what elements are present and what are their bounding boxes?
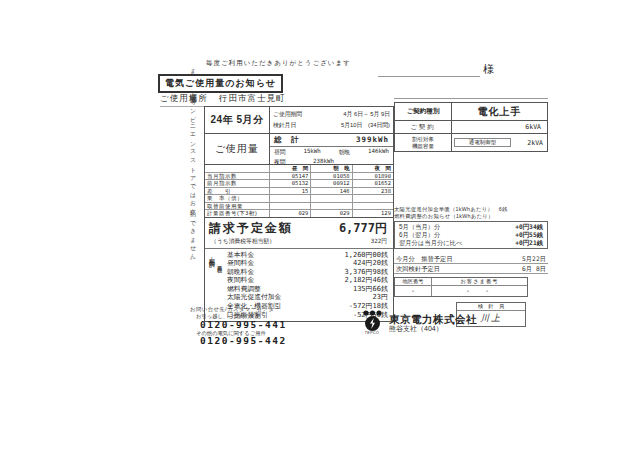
- usage-billing-table: 24年 5月分 ご使用期間 4月 6日～ 5月 9日 検針月日 5月10日 (3…: [204, 106, 394, 322]
- usage-period-line: ご使用期間 4月 6日～ 5月 9日: [273, 110, 390, 119]
- next-reading-value: 6月 8日: [522, 264, 546, 273]
- discount-device-label-line2: 機器容量: [412, 143, 434, 150]
- usage-place-label: ご使用場所: [160, 93, 208, 103]
- company-names: 東京電力株式会社 熊谷支社（404）: [389, 313, 477, 333]
- contact-title: お問い合せ先/カスタマーセンター: [190, 306, 348, 313]
- rate-notice-block: 太陽光促進付加金単価（1kWhあたり） 6銭 燃料費調整のお知らせ（1kWhあた…: [394, 206, 548, 249]
- contract-info-column: ご契約種別 電化上手 ご契約 6kVA 割引対象 機器容量 通電制御型 2kVA: [394, 98, 548, 327]
- charge-label: 朝晩料金: [227, 268, 254, 277]
- contract-type-value: 電化上手: [452, 105, 547, 119]
- tepco-logo-text: TEPCO: [365, 332, 380, 336]
- billed-amount-row: 請求予定金額 6,777円: [205, 217, 393, 237]
- meter-value: [269, 194, 310, 202]
- meter-row-label: 前月指示数: [205, 179, 269, 187]
- usage-morning-label: 朝晩: [339, 148, 351, 157]
- reading-date-line: 検針月日 5月10日 (34日間): [273, 121, 390, 130]
- charge-value: 3,376円98銭: [344, 268, 388, 277]
- meter-value: [352, 202, 393, 210]
- customer-number-header: 地区番号 お客さま番号: [395, 278, 527, 286]
- transfer-date-value: 5月22日: [522, 254, 546, 263]
- fuel-adjustment-line: 燃料費調整のお知らせ（1kWhあたり）: [394, 213, 548, 220]
- meter-value: [352, 194, 393, 202]
- customer-number-label: お客さま番号: [432, 278, 527, 285]
- contract-type-label: ご契約種別: [395, 103, 452, 120]
- contract-capacity-row: ご契約 6kVA: [395, 121, 547, 134]
- meter-row-label: 取替前使用量: [205, 202, 269, 210]
- charge-value: 23円: [373, 293, 388, 302]
- company-branch: 熊谷支社（404）: [389, 325, 477, 333]
- company-name: 東京電力株式会社: [389, 313, 477, 325]
- usage-label: ご使用量: [205, 134, 270, 164]
- meter-value: 029: [310, 209, 351, 217]
- usage-day-label: 昼間: [274, 148, 286, 157]
- usage-total-line: 総 計 399kWh: [270, 134, 393, 147]
- meter-value: [310, 202, 351, 210]
- usage-values: 総 計 399kWh 昼間 15kWh 朝晩 146kWh 夜間 238kWh: [270, 134, 393, 164]
- breakdown-inner-label: 電力量料金: [217, 261, 224, 264]
- fuel-row-current: 5月（当月）分 +0円34銭: [399, 223, 543, 231]
- usage-place-row: ご使用場所 行田市富士見町: [160, 93, 392, 107]
- reading-date-label: 検針月日: [273, 121, 296, 130]
- tepco-logo-icon: TEPCO: [360, 310, 384, 336]
- meter-row-label: 計量器番号(下3桁): [205, 209, 269, 217]
- usage-total-value: 399kWh: [356, 135, 389, 145]
- meter-value: 01652: [352, 179, 393, 187]
- contract-table: ご契約種別 電化上手 ご契約 6kVA 割引対象 機器容量 通電制御型 2kVA: [394, 102, 548, 152]
- meter-value: 05132: [269, 179, 310, 187]
- usage-place-value: 行田市富士見町: [219, 93, 286, 103]
- usage-total-label: 総 計: [274, 135, 300, 145]
- meter-value: 05147: [269, 172, 310, 180]
- contract-capacity-label: ご契約: [395, 121, 452, 133]
- area-number-label: 地区番号: [395, 278, 432, 285]
- charge-value: 1,260円00銭: [344, 251, 388, 260]
- billed-amount-value: 6,777円: [339, 220, 387, 237]
- customer-number-values: - - -: [395, 286, 527, 296]
- fuel-row-value: +0円21銭: [515, 239, 543, 247]
- fuel-row-value: +0円55銭: [515, 231, 543, 239]
- fuel-row-label: 6月（翌月）分: [399, 231, 440, 239]
- other-phone-number: 0120-995-442: [190, 336, 348, 346]
- billing-month: 24年 5月分: [205, 107, 270, 133]
- honorific-sama: 様: [483, 62, 494, 77]
- tax-value: 322円: [371, 237, 387, 246]
- divider-line: [394, 98, 548, 99]
- meter-value: 029: [269, 209, 310, 217]
- area-number-value: -: [395, 286, 432, 296]
- usage-period-value: 4月 6日～ 5月 9日: [343, 110, 390, 119]
- meter-value: 146: [310, 187, 351, 195]
- company-block: TEPCO 東京電力株式会社 熊谷支社（404）: [360, 310, 477, 336]
- transfer-date-label: 今月分 振替予定日: [396, 254, 453, 263]
- usage-morning-value: 146kWh: [368, 148, 389, 157]
- charge-label: 夜間料金: [227, 276, 254, 285]
- fuel-row-label: 翌月分は当月分に比べ: [399, 239, 462, 247]
- contract-capacity-value: 6kVA: [452, 123, 547, 131]
- footer-block: お問い合せ先/カスタマーセンター お引っ越し、ご契約の変更 0120-995-4…: [190, 306, 540, 346]
- meter-value: 01890: [352, 172, 393, 180]
- bill-title: 電気ご使用量のお知らせ: [158, 74, 283, 93]
- fuel-row-label: 5月（当月）分: [399, 223, 440, 231]
- meter-value: 00912: [310, 179, 351, 187]
- meter-reading-table: 昼 間 朝 晩 夜 間 当月指示数 05147 01058 01890 前月指示…: [205, 165, 393, 217]
- meter-value: 15: [269, 187, 310, 195]
- solar-surcharge-line: 太陽光促進付加金単価（1kWhあたり） 6銭: [394, 206, 548, 213]
- billed-amount-label: 請求予定金額: [209, 220, 293, 237]
- next-reading-row: 次回検針予定日 6月 8日: [394, 264, 548, 274]
- billing-month-row: 24年 5月分 ご使用期間 4月 6日～ 5月 9日 検針月日 5月10日 (3…: [205, 107, 393, 134]
- usage-row: ご使用量 総 計 399kWh 昼間 15kWh 朝晩 146kWh 夜間 23: [205, 134, 393, 165]
- charge-row-solar: 太陽光促進付加金 23円: [227, 293, 388, 302]
- fuel-row-value: +0円34銭: [515, 223, 543, 231]
- usage-day-morning-line: 昼間 15kWh 朝晩 146kWh: [270, 147, 393, 157]
- usage-period-label: ご使用期間: [273, 110, 302, 119]
- usage-period-cell: ご使用期間 4月 6日～ 5月 9日 検針月日 5月10日 (34日間): [270, 107, 393, 133]
- meter-value: 238: [352, 187, 393, 195]
- fuel-row-diff: 翌月分は当月分に比べ +0円21銭: [399, 239, 543, 247]
- discount-device-value: 2kVA: [513, 139, 547, 147]
- charge-row-basic: 基本料金 1,260円00銭: [227, 251, 388, 260]
- charge-label: 太陽光促進付加金: [227, 293, 281, 302]
- charge-value: 135円66銭: [353, 285, 388, 294]
- charge-value: 2,182円46銭: [344, 276, 388, 285]
- customer-number-box: 地区番号 お客さま番号 - - -: [394, 277, 528, 297]
- next-reading-label: 次回検針予定日: [396, 264, 440, 273]
- reading-date-value: 5月10日 (34日間): [341, 121, 390, 130]
- bill-sheet: また、金融機関等コンビニエンスストアではお支払いできません。 毎度ご利用いただき…: [128, 52, 552, 372]
- usage-day-value: 15kWh: [303, 148, 320, 157]
- charge-label: 基本料金: [227, 251, 254, 260]
- charge-value: 424円20銭: [353, 259, 388, 268]
- fuel-row-next: 6月（翌月）分 +0円55銭: [399, 231, 543, 239]
- charge-row-day: 昼間料金 424円20銭: [227, 259, 388, 268]
- meter-row-label: 当月指示数: [205, 172, 269, 180]
- scanned-electricity-bill: また、金融機関等コンビニエンスストアではお支払いできません。 毎度ご利用いただき…: [0, 0, 640, 453]
- tax-label: （うち消費税等相当額）: [211, 237, 275, 246]
- moving-phone-number: 0120-995-441: [190, 320, 348, 330]
- charge-label: 昼間料金: [227, 259, 254, 268]
- customer-number-value: - -: [432, 286, 527, 296]
- meter-value: 01058: [310, 172, 351, 180]
- discount-device-label: 割引対象 機器容量: [395, 134, 452, 151]
- tax-row: （うち消費税等相当額） 322円: [205, 237, 393, 249]
- fuel-adjustment-box: 5月（当月）分 +0円34銭 6月（翌月）分 +0円55銭 翌月分は当月分に比べ…: [394, 221, 548, 249]
- charge-row-fuel: 燃料費調整 135円66銭: [227, 285, 388, 294]
- transfer-date-row: 今月分 振替予定日 5月22日: [394, 254, 548, 264]
- customer-name-underline: [378, 76, 480, 77]
- charge-row-morning: 朝晩料金 3,376円98銭: [227, 268, 388, 277]
- meter-value: 129: [352, 209, 393, 217]
- meter-value: [269, 202, 310, 210]
- charge-label: 燃料費調整: [227, 285, 261, 294]
- discount-device-type: 通電制御型: [454, 138, 511, 147]
- discount-device-row: 割引対象 機器容量 通電制御型 2kVA: [395, 134, 547, 151]
- meter-row-label: 差 引: [205, 187, 269, 195]
- meter-row-label: 乗 率（倍）: [205, 194, 269, 202]
- meter-value: [310, 194, 351, 202]
- contact-block: お問い合せ先/カスタマーセンター お引っ越し、ご契約の変更 0120-995-4…: [190, 306, 348, 346]
- thanks-message: 毎度ご利用いただきありがとうございます: [206, 59, 351, 68]
- contract-type-row: ご契約種別 電化上手: [395, 103, 547, 121]
- charge-row-night: 夜間料金 2,182円46銭: [227, 276, 388, 285]
